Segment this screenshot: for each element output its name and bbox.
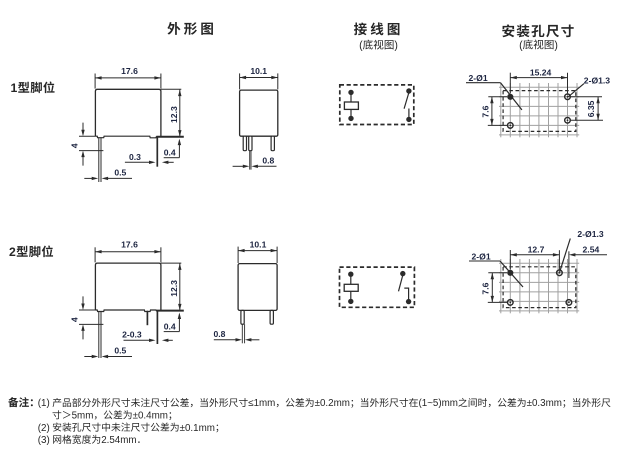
svg-text:2-Ø1.3: 2-Ø1.3 <box>584 75 610 85</box>
svg-text:±0.4mm: ±0.4mm <box>133 411 168 422</box>
svg-text:0.8: 0.8 <box>214 329 226 339</box>
svg-text:(2): (2) <box>38 423 50 434</box>
svg-text:1: 1 <box>11 81 18 95</box>
svg-text:2-Ø1: 2-Ø1 <box>472 251 491 261</box>
svg-text:±0.1mm: ±0.1mm <box>180 423 215 434</box>
svg-text:15.24: 15.24 <box>530 67 552 77</box>
svg-text:): ) <box>394 40 398 52</box>
svg-text:10.1: 10.1 <box>250 66 267 76</box>
svg-text:2-Ø1.3: 2-Ø1.3 <box>577 229 603 239</box>
svg-text:2-0.3: 2-0.3 <box>122 330 142 340</box>
svg-text:2.54: 2.54 <box>583 244 600 254</box>
svg-text:4: 4 <box>70 143 80 148</box>
svg-text:12.7: 12.7 <box>528 244 545 254</box>
svg-text:(3): (3) <box>38 435 50 446</box>
svg-text:10.1: 10.1 <box>250 239 267 249</box>
svg-text:(: ( <box>519 39 523 51</box>
svg-text:(1~5)mm: (1~5)mm <box>419 398 458 409</box>
svg-text:2-Ø1: 2-Ø1 <box>469 73 488 83</box>
svg-text:17.6: 17.6 <box>121 240 138 250</box>
svg-text:6.35: 6.35 <box>586 100 596 117</box>
svg-text:0.4: 0.4 <box>164 148 176 158</box>
svg-text:0.8: 0.8 <box>262 156 274 166</box>
svg-text:7.6: 7.6 <box>480 105 490 117</box>
svg-text:7.6: 7.6 <box>481 282 491 294</box>
svg-text:2.54mm: 2.54mm <box>101 435 136 446</box>
svg-text:0.5: 0.5 <box>114 168 126 178</box>
svg-text:): ) <box>554 39 558 51</box>
svg-text:2: 2 <box>9 245 16 259</box>
svg-text:±0.2mm: ±0.2mm <box>315 398 350 409</box>
svg-text:0.3: 0.3 <box>129 152 141 162</box>
svg-text:0.4: 0.4 <box>164 322 176 332</box>
svg-text:≤1mm: ≤1mm <box>248 398 275 409</box>
svg-text:5mm: 5mm <box>72 411 94 422</box>
svg-text:17.6: 17.6 <box>121 66 138 76</box>
svg-text:0.5: 0.5 <box>114 346 126 356</box>
svg-text:4: 4 <box>70 317 80 322</box>
svg-text:(1): (1) <box>38 398 50 409</box>
svg-text:12.3: 12.3 <box>169 280 179 297</box>
svg-text:±0.3mm: ±0.3mm <box>527 398 562 409</box>
svg-text:12.3: 12.3 <box>169 106 179 123</box>
svg-text:(: ( <box>359 40 363 52</box>
